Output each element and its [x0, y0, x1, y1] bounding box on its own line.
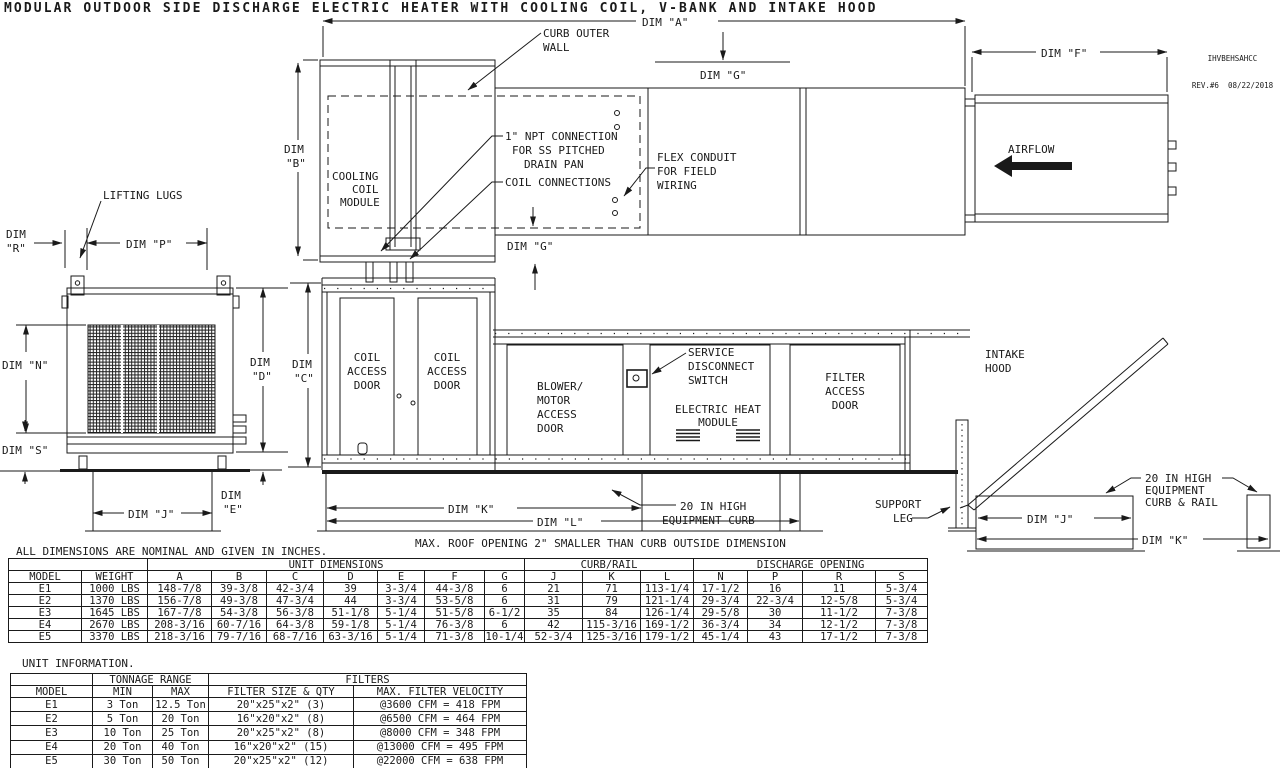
table-cell: E5 [9, 631, 82, 643]
table-cell: 3370 LBS [82, 631, 148, 643]
column-header: MODEL [11, 686, 93, 698]
svg-text:MODULE: MODULE [340, 196, 380, 209]
column-header: MAX. FILTER VELOCITY [354, 686, 527, 698]
table-cell: 22-3/4 [748, 595, 803, 607]
table-cell: 113-1/4 [641, 583, 694, 595]
table-cell: 59-1/8 [324, 619, 378, 631]
table-cell: 1645 LBS [82, 607, 148, 619]
table-cell: 148-7/8 [148, 583, 212, 595]
table-cell: 49-3/8 [212, 595, 267, 607]
unit-information-table: TONNAGE RANGE FILTERS MODEL MIN MAX FILT… [10, 673, 527, 768]
svg-text:SUPPORT: SUPPORT [875, 498, 922, 511]
discharge-opening-header: DISCHARGE OPENING [694, 559, 928, 571]
table-cell: E2 [9, 595, 82, 607]
svg-text:DIM "P": DIM "P" [126, 238, 172, 251]
table-column-header-row: MODEL WEIGHT A B C D E F G J K L N P R S [9, 571, 928, 583]
table-cell: 3-3/4 [378, 583, 425, 595]
side-curb [0, 471, 221, 531]
svg-text:DIM "K": DIM "K" [448, 503, 494, 516]
table-cell: E3 [9, 607, 82, 619]
table-row: E31645 LBS167-7/854-3/856-3/851-1/85-1/4… [9, 607, 928, 619]
svg-text:CURB & RAIL: CURB & RAIL [1145, 496, 1218, 509]
table-cell: 25 Ton [153, 726, 209, 740]
table-row: E530 Ton50 Ton20"x25"x2" (12)@22000 CFM … [11, 754, 527, 768]
svg-text:FOR SS PITCHED: FOR SS PITCHED [512, 144, 605, 157]
dim-k-curb: DIM "K" [327, 503, 641, 516]
unit-table-note: UNIT INFORMATION. [22, 657, 135, 670]
table-cell: 2670 LBS [82, 619, 148, 631]
service-disconnect-switch-callout: SERVICE DISCONNECT SWITCH [652, 346, 755, 387]
table-cell: 17-1/2 [803, 631, 876, 643]
svg-text:COIL CONNECTIONS: COIL CONNECTIONS [505, 176, 611, 189]
table-cell: 12-5/8 [803, 595, 876, 607]
plan-inner-lines [320, 60, 1168, 256]
drawing-canvas: AIRFLOW COOLING COIL MODULE DIM "A" DIM … [0, 0, 1280, 560]
blower-motor-access-door-label: BLOWER/ MOTOR ACCESS DOOR [537, 380, 583, 435]
elevation-base-line [322, 470, 958, 474]
table-cell: @22000 CFM = 638 FPM [354, 754, 527, 768]
svg-text:BLOWER/: BLOWER/ [537, 380, 583, 393]
table-cell: 17-1/2 [694, 583, 748, 595]
curb-outer-wall-callout: CURB OUTER WALL [468, 27, 610, 90]
svg-text:DOOR: DOOR [354, 379, 381, 392]
column-header: FILTER SIZE & QTY [209, 686, 354, 698]
table-cell: 20 Ton [153, 712, 209, 726]
table-cell: 30 Ton [93, 754, 153, 768]
svg-text:ACCESS: ACCESS [427, 365, 467, 378]
lifting-lug-hole [75, 281, 79, 285]
svg-text:"B": "B" [286, 157, 306, 170]
table-cell: 20 Ton [93, 740, 153, 754]
table-row: E53370 LBS218-3/1679-7/1668-7/1663-3/165… [9, 631, 928, 643]
max-roof-opening-note: MAX. ROOF OPENING 2" SMALLER THAN CURB O… [415, 537, 786, 550]
table-cell: 156-7/8 [148, 595, 212, 607]
table-cell: 7-3/8 [876, 619, 928, 631]
table-cell: 16 [748, 583, 803, 595]
svg-text:SERVICE: SERVICE [688, 346, 734, 359]
table-cell: 169-1/2 [641, 619, 694, 631]
column-header: F [425, 571, 485, 583]
dim-g-bottom: DIM "G" [507, 207, 553, 290]
svg-text:WALL: WALL [543, 41, 570, 54]
column-header: K [583, 571, 641, 583]
svg-text:"C": "C" [294, 372, 314, 385]
svg-text:ACCESS: ACCESS [537, 408, 577, 421]
table-cell: 52-3/4 [525, 631, 583, 643]
table-cell: 34 [748, 619, 803, 631]
table-cell: 51-1/8 [324, 607, 378, 619]
drawing-sheet: MODULAR OUTDOOR SIDE DISCHARGE ELECTRIC … [0, 0, 1280, 768]
svg-text:DIM: DIM [250, 356, 270, 369]
svg-text:DISCONNECT: DISCONNECT [688, 360, 755, 373]
dim-g-top: DIM "G" [655, 32, 790, 82]
table-cell: 63-3/16 [324, 631, 378, 643]
cooling-coil-module-label: COOLING COIL MODULE [332, 170, 380, 209]
dim-k-rail: DIM "K" [977, 534, 1268, 547]
table-cell: 3-3/4 [378, 595, 425, 607]
svg-text:1" NPT CONNECTION: 1" NPT CONNECTION [505, 130, 618, 143]
table-cell: 6 [485, 619, 525, 631]
table-cell: 51-5/8 [425, 607, 485, 619]
door-latch [411, 401, 415, 405]
plan-view: AIRFLOW COOLING COIL MODULE DIM "A" DIM … [284, 16, 1176, 290]
table-cell: 71-3/8 [425, 631, 485, 643]
empty-header-cell [11, 674, 93, 686]
table-cell: 7-3/8 [876, 607, 928, 619]
table-cell: 115-3/16 [583, 619, 641, 631]
coil-access-door-1-label: COIL ACCESS DOOR [347, 351, 387, 392]
svg-text:SWITCH: SWITCH [688, 374, 728, 387]
table-cell: 50 Ton [153, 754, 209, 768]
table-cell: 1000 LBS [82, 583, 148, 595]
column-header: C [267, 571, 324, 583]
column-header: MIN [93, 686, 153, 698]
column-header: MAX [153, 686, 209, 698]
table-cell: 84 [583, 607, 641, 619]
table-cell: 6 [485, 595, 525, 607]
table-cell: 53-5/8 [425, 595, 485, 607]
table-cell: 16"x20"x2" (15) [209, 740, 354, 754]
svg-text:"R": "R" [6, 242, 26, 255]
intake-hood-label: INTAKE HOOD [985, 348, 1025, 375]
column-header: R [803, 571, 876, 583]
table-row: E25 Ton20 Ton16"x20"x2" (8)@6500 CFM = 4… [11, 712, 527, 726]
table-cell: 121-1/4 [641, 595, 694, 607]
table-cell: @13000 CFM = 495 FPM [354, 740, 527, 754]
table-cell: 5-1/4 [378, 631, 425, 643]
svg-text:CURB OUTER: CURB OUTER [543, 27, 610, 40]
table-cell: 21 [525, 583, 583, 595]
table-cell: 125-3/16 [583, 631, 641, 643]
svg-text:INTAKE: INTAKE [985, 348, 1025, 361]
dim-c: DIM "C" [288, 283, 321, 467]
table-cell: 5-1/4 [378, 619, 425, 631]
svg-text:FILTER: FILTER [825, 371, 865, 384]
table-cell: @3600 CFM = 418 FPM [354, 698, 527, 712]
table-cell: 1370 LBS [82, 595, 148, 607]
column-header: WEIGHT [82, 571, 148, 583]
column-header: J [525, 571, 583, 583]
table-cell: 79 [583, 595, 641, 607]
table-cell: 5-3/4 [876, 595, 928, 607]
table-cell: 30 [748, 607, 803, 619]
svg-text:LEG: LEG [893, 512, 913, 525]
column-header: P [748, 571, 803, 583]
table-cell: 20"x25"x2" (3) [209, 698, 354, 712]
airflow-arrow-icon [994, 155, 1072, 177]
table-cell: 5-1/4 [378, 607, 425, 619]
svg-text:DIM "J": DIM "J" [1027, 513, 1073, 526]
svg-text:DIM: DIM [6, 228, 26, 241]
table-row: E420 Ton40 Ton16"x20"x2" (15)@13000 CFM … [11, 740, 527, 754]
column-header: E [378, 571, 425, 583]
table-cell: 16"x20"x2" (8) [209, 712, 354, 726]
svg-text:DIM "A": DIM "A" [642, 16, 688, 29]
table-cell: E3 [11, 726, 93, 740]
table-cell: 20"x25"x2" (8) [209, 726, 354, 740]
table-cell: 20"x25"x2" (12) [209, 754, 354, 768]
service-disconnect-switch [627, 370, 647, 387]
table-cell: 218-3/16 [148, 631, 212, 643]
table-cell: 3 Ton [93, 698, 153, 712]
svg-text:LIFTING LUGS: LIFTING LUGS [103, 189, 182, 202]
svg-text:FOR FIELD: FOR FIELD [657, 165, 717, 178]
svg-text:DOOR: DOOR [832, 399, 859, 412]
svg-text:HOOD: HOOD [985, 362, 1012, 375]
coil-access-door-2-label: COIL ACCESS DOOR [427, 351, 467, 392]
table-cell: 12-1/2 [803, 619, 876, 631]
table-cell: 208-3/16 [148, 619, 212, 631]
table-row: E21370 LBS156-7/849-3/847-3/4443-3/453-5… [9, 595, 928, 607]
plan-outlines [320, 60, 1168, 262]
door-handle [358, 443, 367, 454]
column-header: N [694, 571, 748, 583]
svg-text:COIL: COIL [352, 183, 379, 196]
column-header: MODEL [9, 571, 82, 583]
door-latch [397, 394, 401, 398]
table-cell: 12.5 Ton [153, 698, 209, 712]
svg-text:DIM "K": DIM "K" [1142, 534, 1188, 547]
table-cell: 10 Ton [93, 726, 153, 740]
table-cell: 47-3/4 [267, 595, 324, 607]
svg-text:DOOR: DOOR [537, 422, 564, 435]
column-header: D [324, 571, 378, 583]
table-cell: 68-7/16 [267, 631, 324, 643]
table-cell: 45-1/4 [694, 631, 748, 643]
unit-dimensions-header: UNIT DIMENSIONS [148, 559, 525, 571]
dimension-table-note: ALL DIMENSIONS ARE NOMINAL AND GIVEN IN … [16, 545, 327, 558]
table-cell: 39-3/8 [212, 583, 267, 595]
elevation-view: COIL ACCESS DOOR COIL ACCESS DOOR BLOWER… [317, 278, 1168, 550]
svg-text:DIM: DIM [221, 489, 241, 502]
side-base-line [60, 469, 250, 472]
table-cell: 44 [324, 595, 378, 607]
table-cell: 64-3/8 [267, 619, 324, 631]
side-view: LIFTING LUGS DIM "R" DIM "P" DIM "N" [0, 189, 321, 531]
screw-dot-rows [324, 289, 968, 460]
svg-text:DIM "N": DIM "N" [2, 359, 48, 372]
switch-knob [633, 375, 639, 381]
table-cell: 39 [324, 583, 378, 595]
table-cell: 35 [525, 607, 583, 619]
table-cell: @6500 CFM = 464 FPM [354, 712, 527, 726]
svg-text:DIM "F": DIM "F" [1041, 47, 1087, 60]
svg-text:DIM: DIM [284, 143, 304, 156]
svg-text:MODULE: MODULE [698, 416, 738, 429]
table-cell: 167-7/8 [148, 607, 212, 619]
svg-text:COIL: COIL [354, 351, 381, 364]
dim-f: DIM "F" [972, 47, 1167, 92]
svg-text:DOOR: DOOR [434, 379, 461, 392]
table-column-header-row: MODEL MIN MAX FILTER SIZE & QTY MAX. FIL… [11, 686, 527, 698]
flex-conduit-callout: FLEX CONDUIT FOR FIELD WIRING [624, 151, 737, 196]
column-header: B [212, 571, 267, 583]
table-cell: 60-7/16 [212, 619, 267, 631]
heater-element-bars [676, 430, 760, 441]
dim-p: DIM "P" [87, 228, 207, 270]
svg-text:DRAIN PAN: DRAIN PAN [524, 158, 584, 171]
dim-a: DIM "A" [323, 16, 965, 86]
svg-text:DIM "G": DIM "G" [700, 69, 746, 82]
table-cell: E2 [11, 712, 93, 726]
table-cell: 29-3/4 [694, 595, 748, 607]
table-cell: E1 [9, 583, 82, 595]
svg-text:"D": "D" [252, 370, 272, 383]
table-cell: 7-3/8 [876, 631, 928, 643]
table-cell: 11-1/2 [803, 607, 876, 619]
table-row: E310 Ton25 Ton20"x25"x2" (8)@8000 CFM = … [11, 726, 527, 740]
table-group-header-row: TONNAGE RANGE FILTERS [11, 674, 527, 686]
svg-text:ELECTRIC HEAT: ELECTRIC HEAT [675, 403, 761, 416]
curb-rail-header: CURB/RAIL [525, 559, 694, 571]
svg-text:FLEX CONDUIT: FLEX CONDUIT [657, 151, 737, 164]
support-leg-callout: SUPPORT LEG [875, 498, 950, 525]
svg-text:MOTOR: MOTOR [537, 394, 570, 407]
svg-text:"E": "E" [223, 503, 243, 516]
column-header: A [148, 571, 212, 583]
table-cell: 126-1/4 [641, 607, 694, 619]
column-header: S [876, 571, 928, 583]
table-cell: 5-3/4 [876, 583, 928, 595]
table-cell: 42-3/4 [267, 583, 324, 595]
electric-heat-module-label: ELECTRIC HEAT MODULE [675, 403, 761, 429]
table-cell: 54-3/8 [212, 607, 267, 619]
support-leg [948, 420, 976, 531]
table-row: E42670 LBS208-3/1660-7/1664-3/859-1/85-1… [9, 619, 928, 631]
filter-access-door-label: FILTER ACCESS DOOR [825, 371, 865, 412]
table-cell: 56-3/8 [267, 607, 324, 619]
table-cell: E4 [11, 740, 93, 754]
table-cell: 44-3/8 [425, 583, 485, 595]
table-group-header-row: UNIT DIMENSIONS CURB/RAIL DISCHARGE OPEN… [9, 559, 928, 571]
column-header: G [485, 571, 525, 583]
table-cell: @8000 CFM = 348 FPM [354, 726, 527, 740]
rail-detail-box [1247, 495, 1270, 548]
table-cell: 40 Ton [153, 740, 209, 754]
svg-text:DIM: DIM [292, 358, 312, 371]
table-cell: 6 [485, 583, 525, 595]
table-cell: 6-1/2 [485, 607, 525, 619]
table-cell: 79-7/16 [212, 631, 267, 643]
table-row: E11000 LBS148-7/839-3/842-3/4393-3/444-3… [9, 583, 928, 595]
table-cell: 5 Ton [93, 712, 153, 726]
dim-d: DIM "D" [236, 288, 288, 452]
svg-text:20 IN HIGH: 20 IN HIGH [680, 500, 746, 513]
svg-text:ACCESS: ACCESS [825, 385, 865, 398]
table-cell: 42 [525, 619, 583, 631]
curb-rail-callout: 20 IN HIGH EQUIPMENT CURB & RAIL [1106, 472, 1257, 509]
dim-b: DIM "B" [284, 60, 318, 260]
table-cell: 31 [525, 595, 583, 607]
table-cell: 71 [583, 583, 641, 595]
table-cell: 179-1/2 [641, 631, 694, 643]
svg-text:DIM "G": DIM "G" [507, 240, 553, 253]
table-cell: E5 [11, 754, 93, 768]
table-row: E13 Ton12.5 Ton20"x25"x2" (3)@3600 CFM =… [11, 698, 527, 712]
table-cell: 11 [803, 583, 876, 595]
coil-mesh [88, 325, 215, 433]
svg-text:COIL: COIL [434, 351, 461, 364]
dim-n: DIM "N" [2, 325, 86, 433]
table-cell: 29-5/8 [694, 607, 748, 619]
empty-header-cell [9, 559, 148, 571]
dim-j-side: DIM "J" [93, 508, 212, 521]
elevation-outlines [322, 278, 970, 470]
lifting-lug-hole [221, 281, 225, 285]
filters-header: FILTERS [209, 674, 527, 686]
airflow-label: AIRFLOW [1008, 143, 1055, 156]
svg-text:DIM "J": DIM "J" [128, 508, 174, 521]
table-cell: 43 [748, 631, 803, 643]
dim-s: DIM "S" [2, 420, 48, 484]
svg-text:DIM "L": DIM "L" [537, 516, 583, 529]
svg-text:COOLING: COOLING [332, 170, 378, 183]
table-cell: E4 [9, 619, 82, 631]
dim-r: DIM "R" [6, 228, 65, 268]
svg-text:WIRING: WIRING [657, 179, 697, 192]
svg-text:DIM "S": DIM "S" [2, 444, 48, 457]
curb-rail-detail: DIM "J" DIM "K" 20 IN HIGH EQUIPMENT CUR… [967, 472, 1280, 560]
tonnage-range-header: TONNAGE RANGE [93, 674, 209, 686]
table-cell: 10-1/4 [485, 631, 525, 643]
dimension-table: UNIT DIMENSIONS CURB/RAIL DISCHARGE OPEN… [8, 558, 928, 643]
dim-e: DIM "E" [221, 470, 282, 516]
column-header: L [641, 571, 694, 583]
table-cell: 76-3/8 [425, 619, 485, 631]
dim-j-rail: DIM "J" [978, 513, 1131, 526]
flex-conduit-connections [613, 111, 620, 216]
table-cell: 36-3/4 [694, 619, 748, 631]
plan-small-parts [366, 99, 1176, 282]
svg-text:ACCESS: ACCESS [347, 365, 387, 378]
table-cell: E1 [11, 698, 93, 712]
